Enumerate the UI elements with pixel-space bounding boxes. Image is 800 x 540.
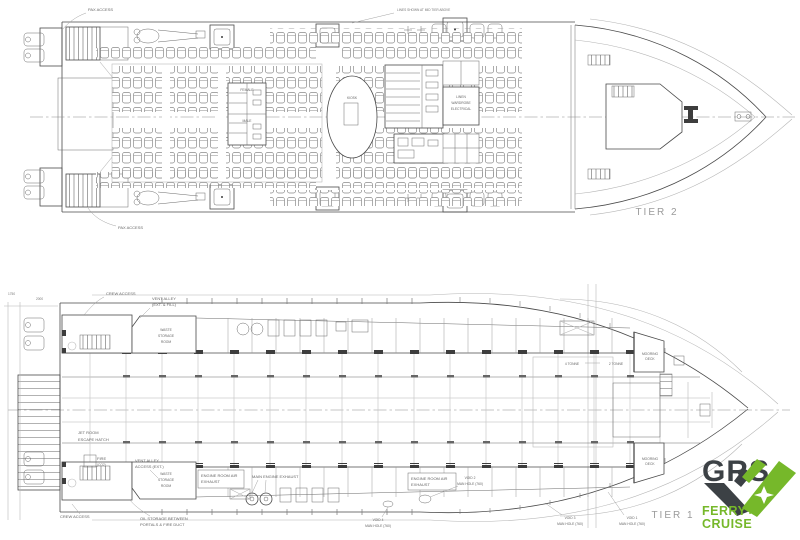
tier2-stern-sponsons bbox=[24, 33, 44, 199]
void1-name: VOID 1 bbox=[627, 516, 638, 520]
kiosk-label: KIOSK bbox=[347, 96, 358, 100]
fire-line1: FIRE bbox=[97, 456, 106, 461]
mooring-top-line2: DECK bbox=[645, 357, 655, 361]
tier2-top-note: LINES SHOWN AT MID TIER ABOVE bbox=[397, 8, 450, 12]
store-room-line2: WARDROBE bbox=[451, 101, 471, 105]
oil-storage-line1: OIL STORAGE BETWEEN bbox=[140, 516, 188, 521]
tier1-stern-ramp bbox=[4, 302, 60, 520]
tonne-2-label: 2 TONNE bbox=[609, 362, 624, 366]
jet-room-line1: JET ROOM bbox=[78, 430, 99, 435]
store-bot-line2: STORAGE bbox=[158, 478, 175, 482]
void4-detail: MAN HOLE (760) bbox=[365, 524, 391, 528]
er-air-exhaust-right-line1: ENGINE ROOM AIR bbox=[411, 476, 448, 481]
logo-tagline-ferry: FERRY+ bbox=[702, 504, 754, 518]
pax-access-top-label: PAX ACCESS bbox=[88, 7, 113, 12]
pax-access-bottom-label: PAX ACCESS bbox=[118, 225, 143, 230]
dim-1750: 1750 bbox=[8, 292, 15, 296]
vent-alley-fill-line2: (EXT. & FILL) bbox=[152, 302, 177, 307]
tier1-top-casing bbox=[196, 318, 632, 353]
store-top-line2: STORAGE bbox=[158, 334, 175, 338]
store-bot-line3: ROOM bbox=[161, 484, 172, 488]
male-wc-label: MALE bbox=[243, 119, 253, 123]
er-air-exhaust-left-line1: ENGINE ROOM AIR bbox=[201, 473, 238, 478]
jet-room-line2: ESCAPE HATCH bbox=[78, 437, 109, 442]
main-engine-exhaust-label: MAIN ENGINE EXHAUST bbox=[252, 474, 299, 479]
dim-2000: 2000 bbox=[36, 297, 43, 301]
tier2-store-room: LINEN WARDROBE ELECTRICAL bbox=[443, 61, 479, 125]
er-air-exhaust-left-line2: EXHAUST bbox=[201, 479, 220, 484]
void4-name: VOID 4 bbox=[373, 518, 384, 522]
void2-name: VOID 2 bbox=[465, 476, 476, 480]
tier1-mooring-deck: MOORING DECK MOORING DECK bbox=[634, 332, 710, 483]
tier2-plan: FEMALE MALE KIOSK LINEN WARDROBE ELECTRI… bbox=[24, 7, 795, 230]
store-top-line3: ROOM bbox=[161, 340, 172, 344]
er-air-exhaust-right-line2: EXHAUST bbox=[411, 482, 430, 487]
tier2-galley bbox=[394, 134, 479, 163]
tier1-plan: WASTE STORAGE ROOM WASTE STORAGE ROOM bbox=[4, 284, 790, 528]
store-room-line3: ELECTRICAL bbox=[451, 107, 472, 111]
store-top-line1: WASTE bbox=[160, 328, 172, 332]
void3-detail: MAN HOLE (760) bbox=[557, 522, 583, 526]
mooring-top-line1: MOORING bbox=[642, 352, 659, 356]
void1-detail: MAN HOLE (760) bbox=[619, 522, 645, 526]
vent-alley-fill-line1: VENT ALLEY bbox=[152, 296, 176, 301]
tier2-kiosk: KIOSK bbox=[327, 76, 377, 158]
store-room-line1: LINEN bbox=[456, 95, 466, 99]
tier2-wc-block-aft: FEMALE MALE bbox=[228, 83, 266, 145]
tier1-crew-room-bottom: WASTE STORAGE ROOM bbox=[62, 462, 196, 500]
void3-name: VOID 3 bbox=[565, 516, 576, 520]
mooring-bot-line2: DECK bbox=[645, 462, 655, 466]
logo-tagline-cruise: CRUISE bbox=[702, 517, 752, 531]
female-wc-label: FEMALE bbox=[240, 88, 254, 92]
crew-access-bottom-label: CREW ACCESS bbox=[60, 514, 90, 519]
store-bot-line1: WASTE bbox=[160, 472, 172, 476]
ferry-deck-plan-page: FEMALE MALE KIOSK LINEN WARDROBE ELECTRI… bbox=[0, 0, 800, 540]
mooring-bot-line1: MOORING bbox=[642, 457, 659, 461]
fire-line2: (CO2) bbox=[97, 463, 106, 467]
tier1-title: TIER 1 bbox=[651, 510, 694, 521]
void2-detail: MAN HOLE (760) bbox=[457, 482, 483, 486]
crew-access-top-label: CREW ACCESS bbox=[106, 291, 136, 296]
grs-ferry-cruise-logo: GRS FERRY+ CRUISE bbox=[702, 455, 796, 531]
deck-plan-drawing: FEMALE MALE KIOSK LINEN WARDROBE ELECTRI… bbox=[0, 0, 800, 540]
vent-alley-access-line1: VENT ALLEY bbox=[135, 458, 159, 463]
oil-storage-line2: PORTALS & FIRE DUCT bbox=[140, 522, 185, 527]
tier2-wc-block-fwd bbox=[385, 65, 443, 128]
tier1-crew-room-top: WASTE STORAGE ROOM bbox=[62, 315, 196, 353]
tier2-title: TIER 2 bbox=[635, 207, 678, 218]
vent-alley-access-line2: ACCESS (EXT.) bbox=[135, 464, 164, 469]
tonne-4-label: 4 TONNE bbox=[565, 362, 580, 366]
